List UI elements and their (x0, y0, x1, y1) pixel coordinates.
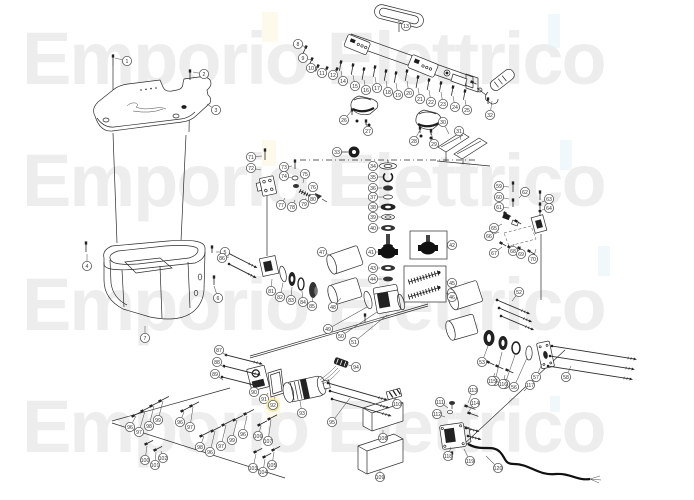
callout-number: 50 (338, 334, 344, 340)
callout-number: 52 (516, 290, 522, 296)
callout-number: 117 (526, 383, 534, 389)
tint-band (550, 396, 560, 412)
callout-number: 98 (146, 424, 152, 430)
callout-number: 97 (187, 425, 193, 431)
callout-number: 87 (216, 348, 222, 354)
parts-diagram-page: Emporio ElettricoEmporio ElettricoEmpori… (0, 0, 694, 500)
callout-number: 80 (310, 197, 316, 203)
callout-number: 42 (449, 243, 455, 249)
callout-number: 1 (126, 59, 129, 65)
callout-number: 76 (310, 185, 316, 191)
callout-number: 114 (471, 401, 479, 407)
callout-number: 32 (487, 113, 493, 119)
callout-number: 49 (325, 327, 331, 333)
callout-number: 103 (249, 466, 258, 472)
callout-number: 58 (563, 375, 569, 381)
callout-number: 27 (365, 129, 371, 135)
callout-number: 120 (494, 466, 503, 472)
callout-number: 107 (264, 439, 273, 445)
callout-number: 93 (299, 411, 305, 417)
callout-number: 68 (510, 249, 516, 255)
callout-number: 53 (479, 360, 485, 366)
callout-number: 9 (302, 56, 305, 62)
callout-number: 21 (417, 97, 423, 103)
callout-number: 7 (144, 336, 147, 342)
callout-number: 97 (136, 430, 142, 436)
callout-number: 91 (261, 397, 267, 403)
callout-number: 2 (203, 72, 206, 78)
callout-number: 85 (309, 304, 315, 310)
callout-number: 8 (297, 42, 300, 48)
callout-number: 71 (248, 155, 254, 161)
part-callout: 80 (308, 194, 317, 203)
callout-number: 43 (370, 266, 376, 272)
callout-number: 46 (449, 295, 455, 301)
callout-number: 69 (518, 252, 524, 258)
tint-band (262, 12, 278, 42)
callout-number: 39 (370, 215, 376, 221)
callout-number: 96 (207, 450, 213, 456)
callout-number: 10 (308, 66, 314, 72)
callout-number: 45 (449, 281, 455, 287)
callout-number: 4 (86, 264, 89, 270)
part-callout: 110 (392, 399, 401, 409)
callout-number: 74 (281, 174, 287, 180)
callout-number: 108 (379, 436, 388, 442)
callout-number: 98 (197, 445, 203, 451)
callout-number: 23 (440, 102, 446, 108)
callout-number: 94 (353, 365, 359, 371)
part-callout: 12 (328, 70, 337, 80)
callout-number: 118 (444, 454, 452, 460)
callout-number: 35 (370, 175, 376, 181)
callout-number: 65 (491, 226, 497, 232)
tint-band (262, 140, 276, 166)
callout-number: 12 (330, 73, 336, 79)
valve-detail-box (410, 231, 447, 259)
callout-number: 59 (496, 184, 502, 190)
callout-number: 30 (440, 120, 446, 126)
callout-number: 20 (406, 91, 412, 97)
callout-number: 36 (370, 186, 376, 192)
callout-number: 57 (533, 375, 539, 381)
callout-number: 47 (319, 250, 325, 256)
callout-number: 82 (277, 295, 283, 301)
callout-number: 119 (466, 459, 474, 465)
callout-number: 99 (155, 418, 161, 424)
callout-number: 109 (376, 475, 385, 481)
callout-number: 22 (428, 100, 434, 106)
callout-number: 97 (218, 444, 224, 450)
callout-number: 62 (522, 190, 528, 196)
callout-number: 75 (302, 172, 308, 178)
callout-number: 28 (411, 139, 417, 145)
callout-number: 95 (329, 420, 335, 426)
callout-number: 66 (486, 234, 492, 240)
callout-number: 11 (319, 71, 324, 77)
callout-number: 101 (151, 463, 160, 469)
callout-number: 115 (488, 379, 496, 385)
callout-number: 102 (159, 456, 168, 462)
callout-number: 70 (530, 257, 536, 263)
callout-number: 96 (127, 425, 133, 431)
callout-number: 86 (219, 256, 225, 262)
callout-number: 41 (368, 250, 374, 256)
callout-number: 81 (268, 289, 274, 295)
callout-number: 26 (341, 118, 347, 124)
callout-number: 113 (469, 388, 477, 394)
callout-number: 61 (496, 205, 502, 211)
callout-number: 106 (254, 434, 263, 440)
callout-number: 110 (393, 402, 401, 408)
callout-number: 6 (217, 296, 220, 302)
callout-number: 83 (288, 298, 294, 304)
callout-number: 105 (268, 463, 277, 469)
pump-gasket (268, 369, 284, 397)
callout-number: 17 (374, 86, 380, 92)
callout-number: 73 (281, 165, 287, 171)
callout-number: 92 (270, 403, 276, 409)
callout-number: 44 (370, 277, 376, 283)
callout-number: 24 (452, 105, 458, 111)
callout-number: 112 (433, 412, 441, 418)
callout-number: 88 (214, 360, 220, 366)
callout-number: 99 (229, 438, 235, 444)
callout-number: 16 (363, 88, 369, 94)
callout-number: 96 (240, 432, 246, 438)
callout-number: 78 (289, 205, 295, 211)
callout-number: 34 (370, 164, 376, 170)
callout-number: 25 (464, 108, 470, 114)
callout-number: 29 (431, 142, 437, 148)
callout-number: 13 (403, 24, 409, 30)
callout-number: 84 (300, 300, 306, 306)
callout-number: 15 (352, 84, 358, 90)
callout-number: 51 (351, 340, 357, 346)
callout-number: 14 (340, 79, 346, 85)
callout-number: 79 (301, 202, 307, 208)
callout-number: 90 (251, 390, 257, 396)
callout-number: 77 (278, 203, 284, 209)
callout-number: 38 (370, 205, 376, 211)
callout-number: 63 (546, 197, 552, 203)
callout-number: 72 (248, 166, 254, 172)
callout-number: 33 (334, 150, 340, 156)
callout-number: 31 (456, 129, 462, 135)
callout-number: 67 (491, 251, 497, 257)
tint-band (548, 14, 560, 48)
callout-number: 19 (395, 93, 401, 99)
callout-number: 64 (546, 206, 552, 212)
callout-number: 40 (370, 226, 376, 232)
callout-number: 3 (215, 108, 218, 114)
callout-number: 89 (212, 372, 218, 378)
callout-number: 100 (141, 458, 150, 464)
exploded-diagram-svg: Emporio ElettricoEmporio ElettricoEmpori… (0, 0, 694, 500)
callout-number: 104 (259, 470, 268, 476)
callout-number: 18 (385, 90, 391, 96)
callout-number: 56 (511, 385, 517, 391)
part-callout: 42 (447, 240, 457, 249)
part-callout: 90 (249, 387, 258, 397)
part-callout: 11 (317, 68, 327, 77)
callout-number: 48 (330, 305, 336, 311)
part-callout: 76 (308, 182, 317, 192)
tint-band (598, 246, 610, 276)
callout-number: 96 (177, 420, 183, 426)
tint-band (560, 140, 572, 170)
callout-number: 111 (436, 400, 444, 406)
callout-number: 37 (370, 195, 376, 201)
callout-number: 60 (496, 195, 502, 201)
watermark-text: Emporio Elettrico (22, 139, 605, 222)
callout-number: 116 (499, 382, 507, 388)
